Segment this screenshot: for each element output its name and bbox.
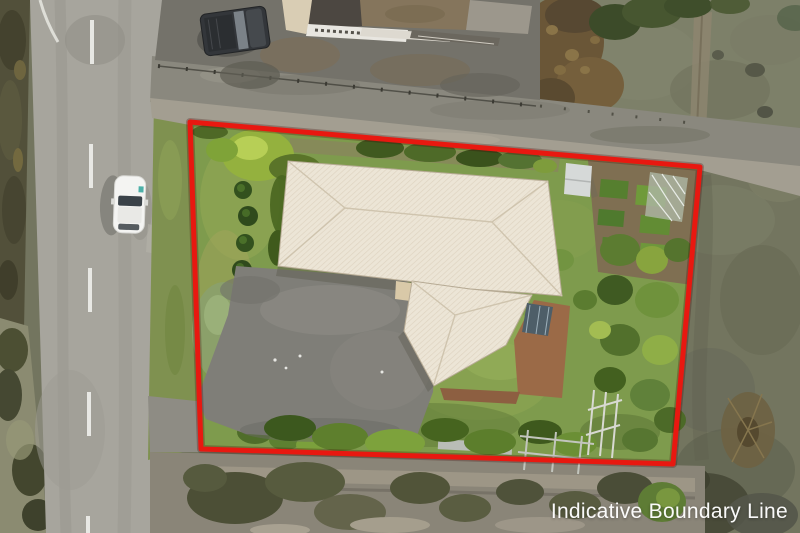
property-lot [190,122,700,474]
greenhouse [645,172,688,222]
property-aerial-screenshot: Indicative Boundary Line [0,0,800,533]
windshield [118,196,142,207]
aerial-scene [0,0,800,533]
boundary-line-label: Indicative Boundary Line [551,500,788,524]
dry-tree [721,392,775,468]
white-car [99,175,149,237]
